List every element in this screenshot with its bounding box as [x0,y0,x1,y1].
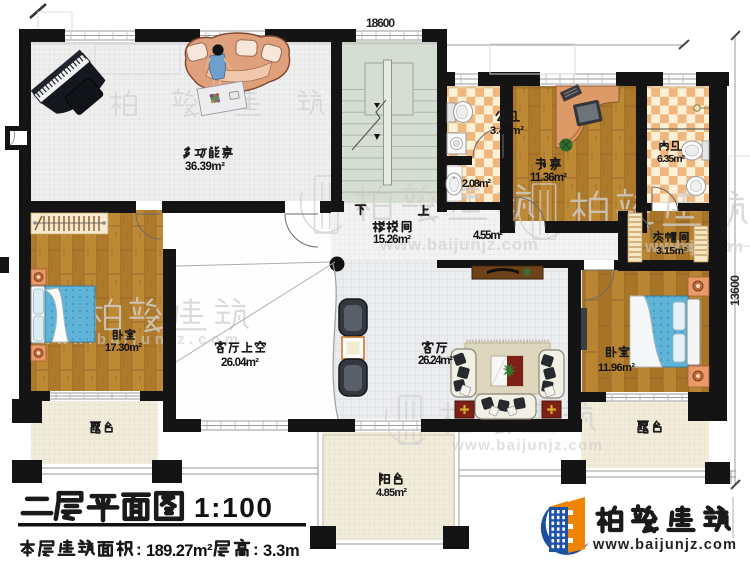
svg-text:26.04m²: 26.04m² [221,357,259,369]
svg-text:6.35m²: 6.35m² [657,153,686,165]
svg-text:26.24m²: 26.24m² [418,355,453,367]
svg-text:189.27m²: 189.27m² [146,542,213,560]
svg-text:4.85m²: 4.85m² [376,487,407,499]
svg-text:3.15m²: 3.15m² [656,245,688,257]
svg-text:www.baijunjz.com: www.baijunjz.com [451,437,604,454]
svg-text:3.3m: 3.3m [263,542,299,560]
svg-text:13600: 13600 [728,275,742,306]
svg-text:3.46m²: 3.46m² [490,125,524,137]
svg-text:15.26m²: 15.26m² [373,234,411,246]
svg-text:2.08m²: 2.08m² [462,178,491,190]
svg-text:4.55m²: 4.55m² [473,230,503,242]
svg-text:18600: 18600 [366,16,395,30]
svg-text:36.39m²: 36.39m² [185,161,225,173]
svg-text:17.30m²: 17.30m² [105,342,142,354]
svg-text:1:100: 1:100 [194,492,272,523]
svg-text:11.36m²: 11.36m² [530,172,567,184]
svg-text::: : [253,540,259,559]
svg-text::: : [136,540,142,559]
svg-text:www.baijunjz.com: www.baijunjz.com [592,537,736,553]
svg-text:11.96m²: 11.96m² [598,362,635,374]
